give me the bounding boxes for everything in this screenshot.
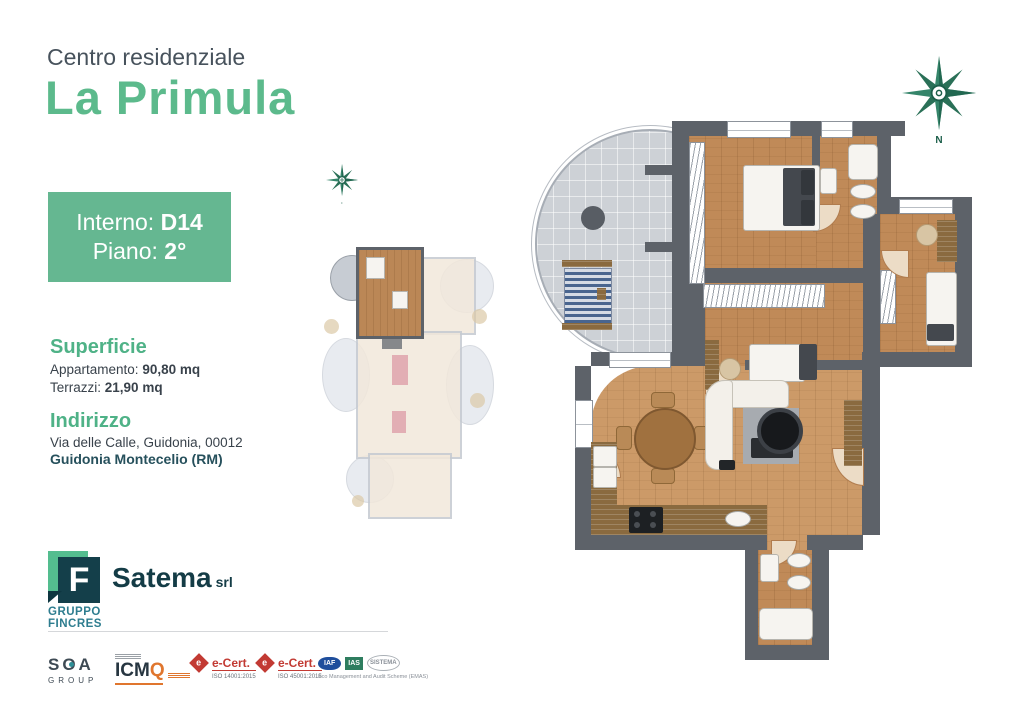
toilet [850,204,876,219]
surface-apartment-label: Appartamento: [50,362,139,377]
fincres-text: FINCRES [48,618,102,630]
wardrobe-glass-strip [689,142,705,284]
ecert2-wordmark: e-Cert. [278,656,322,671]
bathroom-sink [820,168,837,194]
ias-badge: IAS [345,657,363,670]
soa-wordmark: SOA [48,655,97,675]
mini-tree [472,309,487,324]
project-title: La Primula [45,70,295,125]
mini-stairs-accent [392,355,408,385]
wall-segment [863,214,880,356]
bedroom2-bed-blanket [927,324,954,341]
unit-info-card: Interno: D14 Piano: 2° [48,192,231,282]
mini-tree [324,319,339,334]
ecert1-iso-text: ISO 14001:2015 [212,674,256,680]
window [609,352,671,368]
cert-icmq-logo: ICMQ [115,653,190,685]
footer-divider [48,631,388,632]
apartment-floorplan [533,112,983,668]
mini-tree [352,495,364,507]
mini-stairs-accent [392,411,406,433]
ecert1-diamond-icon: e [189,653,209,673]
wall-segment [807,535,863,550]
dining-chair [616,426,632,450]
fridge-top [593,446,617,467]
wall-segment [955,214,972,367]
ecert2-iso-text: ISO 45001:2015 [278,674,322,680]
tall-cabinet [844,400,862,466]
ecert2-diamond-icon: e [255,653,275,673]
unit-interno-line: Interno: D14 [76,209,203,236]
logo-corner-shape [48,591,62,603]
surface-terrace-value: 21,90 mq [105,380,163,395]
interno-label: Interno: [76,209,154,235]
bedroom2-desk [937,220,957,262]
burner [650,522,656,528]
satema-text: Satema [112,562,212,593]
icmq-microtext [115,654,141,659]
project-subtitle: Centro residenziale [47,44,245,71]
mini-compass-north-label: · [326,201,358,207]
bathroom2-toilet [787,553,811,568]
kitchen-sink [725,511,751,527]
mini-compass-svg [326,164,358,196]
bedroom2-chair [916,224,938,246]
piano-value: 2° [164,238,186,264]
bathtub [848,144,878,180]
ecert1-wordmark: e-Cert. [212,656,256,671]
mini-elevator-block [382,338,402,349]
address-line2: Guidonia Montecelio (RM) [50,451,223,467]
wall-segment [812,550,829,645]
surface-apartment-row: Appartamento: 90,80 mq [50,362,200,377]
mini-highlight-bed [392,291,408,309]
window [727,121,791,138]
fridge-bottom [593,467,617,488]
company-name: Satemasrl [108,562,233,594]
dining-chair [651,392,675,408]
mini-highlight-bed [366,257,385,279]
cert-emas-logos: IAF IAS SISTEMA Eco Management and Audit… [318,655,428,680]
sofa-left-section [705,380,733,470]
wall-segment [862,367,880,535]
wall-segment [672,136,689,362]
lounger-head-slat [562,260,612,267]
bathroom2-sink [760,554,779,582]
lounger-side-table [597,288,606,300]
single-bed-bedroom3 [749,344,805,382]
mini-tree [470,393,485,408]
ecert1-diamond-letter: e [196,658,201,668]
lounger-foot-slat [562,323,612,330]
surface-apartment-value: 90,80 mq [142,362,200,377]
logo-letter: F [58,557,100,603]
window [899,199,953,214]
address-line1: Via delle Calle, Guidonia, 00012 [50,435,243,450]
wall-segment [689,268,863,283]
bedroom2-wardrobe [880,270,896,324]
brochure-page: { "header": { "subtitle": "Centro reside… [0,0,1024,724]
cert-ecert2-logo: e e-Cert. ISO 45001:2015 [258,656,322,680]
wall-segment [745,550,758,645]
bed-pillow [801,170,814,195]
interno-value: D14 [161,209,203,235]
bedroom3-bed-blanket [799,344,817,380]
corridor-wardrobe [703,284,825,308]
cert-ecert1-logo: e e-Cert. ISO 14001:2015 [192,656,256,680]
icmq-side-microtext [168,672,190,679]
window [821,121,853,138]
address-heading: Indirizzo [50,410,131,433]
wall-stub [645,242,672,252]
dining-table [634,408,696,470]
unit-piano-line: Piano: 2° [93,238,187,265]
mini-building-lower [368,453,452,519]
ecert2-diamond-letter: e [262,658,267,668]
bedroom3-chair [719,358,741,380]
coffee-table [719,460,735,470]
emas-caption: Eco Management and Audit Scheme (EMAS) [318,674,428,680]
wall-stub [645,165,672,175]
bathroom2-bidet [787,575,811,590]
terrace-round-table [581,206,605,230]
sistema-badge: SISTEMA [367,655,400,671]
cert-soa-logo: SOA GROUP [48,655,97,685]
wall-segment [575,366,591,535]
round-fireplace-tv [757,408,803,454]
burner [634,511,640,517]
gruppo-fincres-logo: F [48,551,100,603]
wall-segment [745,645,829,660]
building-overview-miniplan [322,243,492,528]
dining-chair [651,468,675,484]
icmq-underline [115,683,163,685]
mini-building-body [356,331,462,459]
mini-compass-icon: · [326,164,358,207]
soa-group-text: GROUP [48,676,97,685]
piano-label: Piano: [93,238,158,264]
icmq-q-text: Q [150,660,165,681]
icmq-wordmark: ICMQ [115,660,165,682]
burner [650,511,656,517]
gruppo-fincres-wordmark: GRUPPO FINCRES [48,606,102,630]
soa-o-dot [69,662,74,667]
window [575,400,593,448]
wall-segment [575,535,767,550]
surface-terrace-label: Terrazzi: [50,380,101,395]
burner [634,522,640,528]
srl-text: srl [216,574,233,590]
icmq-icm-text: ICM [115,660,150,681]
bed-pillow [801,200,814,225]
iaf-badge: IAF [318,657,341,670]
bathroom2-bathtub [759,608,813,640]
gruppo-text: GRUPPO [48,606,102,618]
surface-terrace-row: Terrazzi: 21,90 mq [50,380,163,395]
surface-heading: Superficie [50,336,147,359]
bidet [850,184,876,199]
